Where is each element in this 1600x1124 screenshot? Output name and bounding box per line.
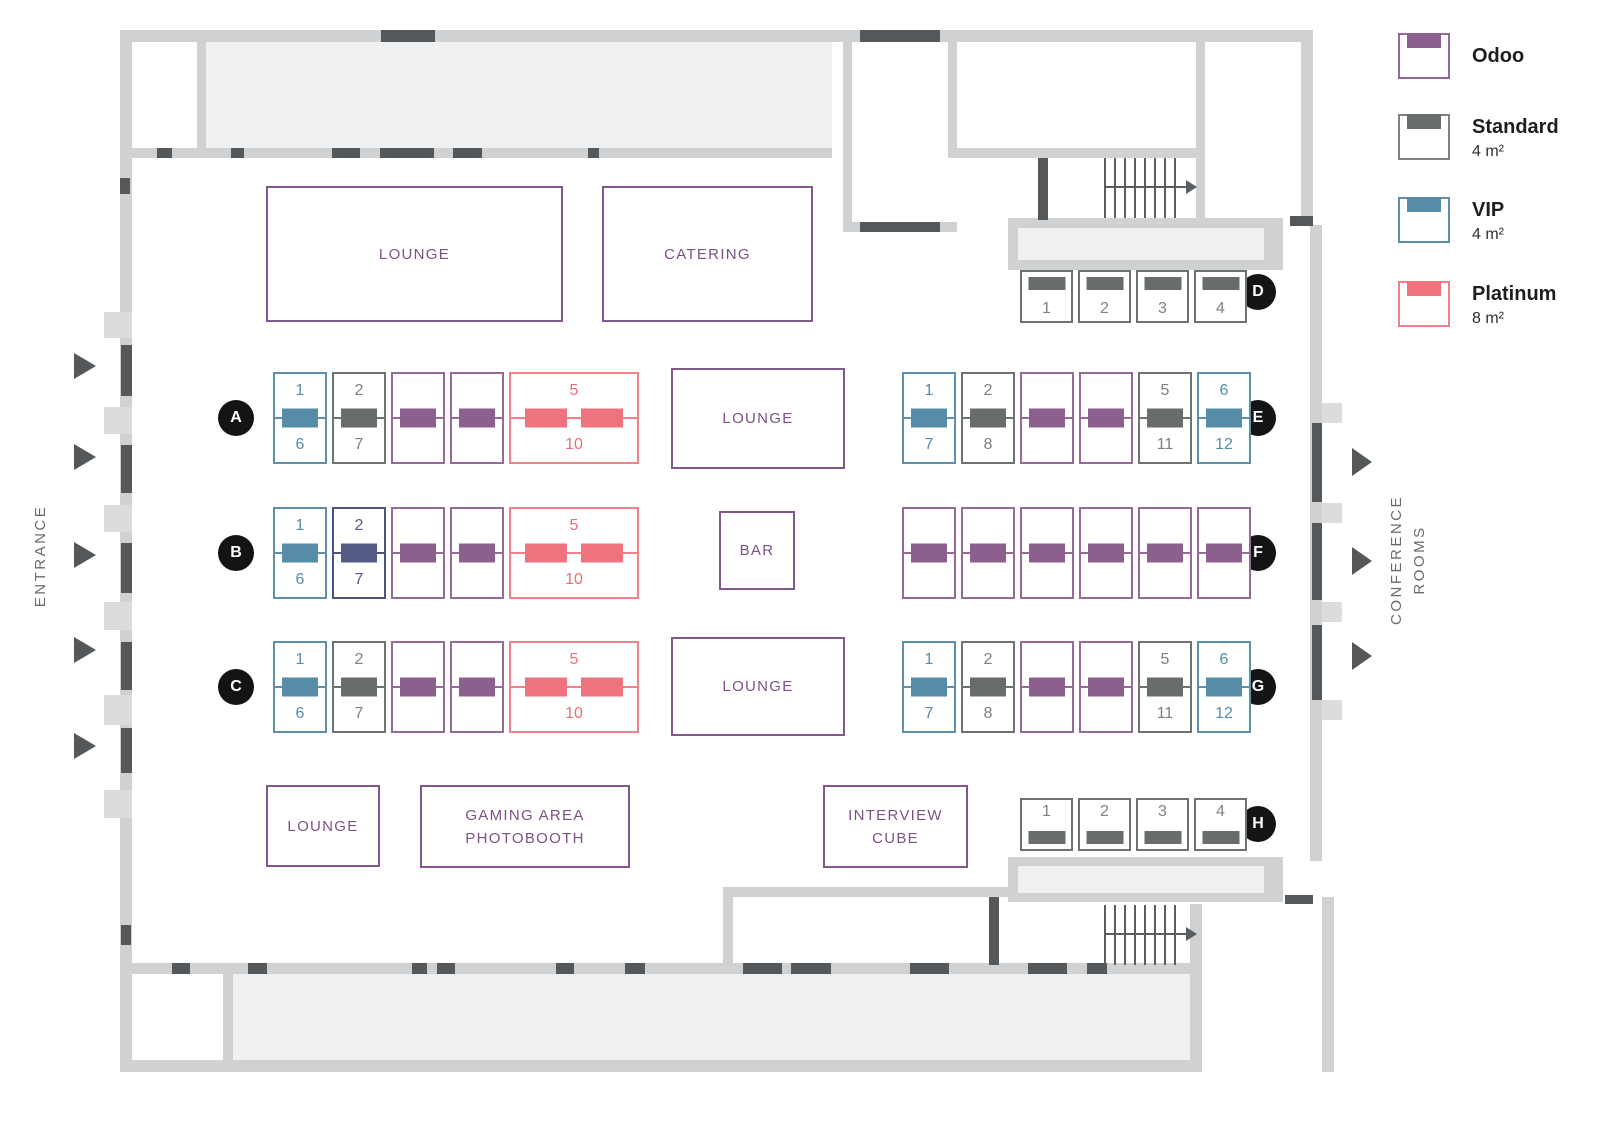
legend-item-platinum: Platinum 8 m² (1398, 281, 1556, 328)
row-letter: F (1253, 544, 1263, 562)
lounge-bottom-area: LOUNGE (266, 785, 380, 867)
conference-arrow-icon (1352, 547, 1372, 575)
wall (197, 42, 206, 148)
door-segment (121, 728, 132, 773)
door-segment (381, 30, 435, 42)
legend-label: VIP (1472, 199, 1504, 221)
booth-g-standard[interactable]: 2 8 (961, 641, 1015, 733)
stairs-bottom-arrow-line (1104, 933, 1188, 935)
legend-item-standard: Standard 4 m² (1398, 114, 1559, 161)
booth-table (1202, 831, 1239, 844)
row-badge-c: C (218, 669, 254, 705)
door-segment (412, 963, 427, 974)
door-segment (121, 445, 132, 493)
door-segment (121, 543, 132, 593)
booth-table (1028, 277, 1065, 290)
pillar (104, 790, 132, 818)
booth-f-odoo[interactable] (1020, 507, 1074, 599)
catering-label: CATERING (664, 243, 751, 266)
booth-h4[interactable]: 4 (1194, 798, 1247, 851)
door-segment (172, 963, 190, 974)
booth-c-odoo[interactable] (450, 641, 504, 733)
lounge-center-upper-area: LOUNGE (671, 368, 845, 469)
booth-table (1086, 831, 1123, 844)
booth-table (459, 544, 495, 563)
booth-table (970, 409, 1006, 428)
booth-number: 5 (1140, 382, 1190, 400)
lounge-center-upper-label: LOUNGE (722, 407, 793, 430)
entrance-arrow-icon (74, 733, 96, 759)
row-letter: A (230, 409, 242, 427)
booth-table (1144, 277, 1181, 290)
booth-number: 5 (511, 517, 637, 535)
booth-e-odoo[interactable] (1020, 372, 1074, 464)
booth-number: 7 (334, 571, 384, 589)
door-segment (453, 148, 482, 158)
booth-table (1202, 277, 1239, 290)
booth-table (282, 678, 318, 697)
booth-d4[interactable]: 4 (1194, 270, 1247, 323)
door-segment (1285, 895, 1313, 904)
booth-table (1147, 678, 1183, 697)
booth-a-odoo[interactable] (450, 372, 504, 464)
wall (843, 42, 852, 232)
booth-f-odoo[interactable] (1079, 507, 1133, 599)
booth-b-odoo[interactable] (450, 507, 504, 599)
booth-table (1028, 831, 1065, 844)
booth-g-standard[interactable]: 5 11 (1138, 641, 1192, 733)
booth-number: 11 (1140, 436, 1190, 454)
legend-item-vip: VIP 4 m² (1398, 197, 1504, 244)
catering-area: CATERING (602, 186, 813, 322)
booth-e-vip[interactable]: 6 12 (1197, 372, 1251, 464)
booth-number: 5 (511, 651, 637, 669)
booth-table (459, 409, 495, 428)
booth-table (581, 409, 623, 428)
booth-b-platinum[interactable]: 5 10 (509, 507, 639, 599)
wall (948, 42, 957, 158)
door-segment (625, 963, 645, 974)
wall (1196, 42, 1205, 222)
booth-f-odoo[interactable] (1197, 507, 1251, 599)
booth-table (911, 409, 947, 428)
wall (723, 887, 1010, 897)
booth-a-vip[interactable]: 1 6 (273, 372, 327, 464)
booth-table (1088, 678, 1124, 697)
gaming-label-line2: PHOTOBOOTH (465, 827, 584, 850)
door-segment (1312, 423, 1322, 502)
bar-area: BAR (719, 511, 795, 590)
swatch-bar (1407, 114, 1441, 129)
entrance-arrow-icon (74, 542, 96, 568)
booth-number: 1 (275, 651, 325, 669)
booth-table (911, 544, 947, 563)
wall (1322, 897, 1334, 1072)
booth-table (970, 678, 1006, 697)
booth-number: 2 (334, 517, 384, 535)
pillar (1322, 602, 1342, 622)
bar-label: BAR (740, 539, 775, 562)
door-segment (910, 963, 949, 974)
door-segment (556, 963, 574, 974)
booth-a-platinum[interactable]: 5 10 (509, 372, 639, 464)
booth-number: 2 (963, 382, 1013, 400)
booth-number: 1 (1022, 300, 1071, 318)
booth-row-e: 1 7 2 8 5 11 6 12 (902, 372, 1251, 464)
row-letter: G (1252, 678, 1264, 696)
legend-item-odoo: Odoo (1398, 33, 1524, 79)
conference-rooms-label: CONFERENCE ROOMS (1385, 430, 1431, 690)
booth-table (400, 544, 436, 563)
booth-table (1206, 544, 1242, 563)
door-segment (248, 963, 267, 974)
booth-h1[interactable]: 1 (1020, 798, 1073, 851)
booth-number: 5 (511, 382, 637, 400)
booth-table (1086, 277, 1123, 290)
booth-table (341, 678, 377, 697)
row-letter: C (230, 678, 242, 696)
booth-number: 7 (334, 436, 384, 454)
bottom-room-fill (233, 974, 1190, 1060)
pillar (104, 505, 132, 532)
booth-g-odoo[interactable] (1079, 641, 1133, 733)
pillar (104, 312, 132, 338)
platinum-swatch-icon (1398, 281, 1450, 327)
booth-table (341, 544, 377, 563)
gaming-area: GAMING AREA PHOTOBOOTH (420, 785, 630, 868)
booth-number: 12 (1199, 705, 1249, 723)
booth-c-platinum[interactable]: 5 10 (509, 641, 639, 733)
row-letter: H (1252, 815, 1264, 833)
booth-g-vip[interactable]: 6 12 (1197, 641, 1251, 733)
booth-table (970, 544, 1006, 563)
wall (120, 1060, 1202, 1072)
legend-size: 8 m² (1472, 310, 1556, 328)
row-badge-b: B (218, 535, 254, 571)
booth-g-vip[interactable]: 1 7 (902, 641, 956, 733)
door-segment (332, 148, 360, 158)
legend-size: 4 m² (1472, 143, 1559, 161)
booth-table (459, 678, 495, 697)
pillar (104, 695, 132, 725)
door-segment (1312, 523, 1322, 600)
entrance-arrow-icon (74, 353, 96, 379)
booth-f-odoo[interactable] (1138, 507, 1192, 599)
row-badge-a: A (218, 400, 254, 436)
booth-number: 1 (904, 382, 954, 400)
booth-e-vip[interactable]: 1 7 (902, 372, 956, 464)
door-segment (588, 148, 599, 158)
door-segment (120, 178, 130, 194)
booth-table (400, 409, 436, 428)
booth-number: 10 (511, 436, 637, 454)
booth-table (525, 544, 567, 563)
booth-number: 5 (1140, 651, 1190, 669)
stairs-top-arrow-line (1104, 186, 1188, 188)
booth-table (1029, 678, 1065, 697)
booth-number: 6 (1199, 382, 1249, 400)
booth-table (911, 678, 947, 697)
booth-number: 6 (275, 571, 325, 589)
booth-number: 7 (904, 705, 954, 723)
corridor-bottom-fill (1018, 866, 1264, 893)
booth-number: 2 (334, 382, 384, 400)
booth-d2[interactable]: 2 (1078, 270, 1131, 323)
door-segment (380, 148, 434, 158)
booth-row-a: 1 6 2 7 5 10 (273, 372, 639, 464)
door-segment (437, 963, 455, 974)
booth-table (1088, 544, 1124, 563)
wall (223, 974, 233, 1062)
booth-number: 7 (334, 705, 384, 723)
door-segment (121, 642, 132, 690)
booth-row-g: 1 7 2 8 5 11 6 12 (902, 641, 1251, 733)
door-segment (121, 345, 132, 396)
booth-table (341, 409, 377, 428)
booth-row-d: 1 2 3 4 (1020, 270, 1247, 323)
swatch-bar (1407, 197, 1441, 212)
pillar (1322, 700, 1342, 720)
booth-number: 8 (963, 436, 1013, 454)
booth-number: 1 (1022, 803, 1071, 821)
booth-row-b: 1 6 2 7 5 10 (273, 507, 639, 599)
pillar (1322, 403, 1342, 423)
booth-table (1029, 544, 1065, 563)
row-letter: E (1253, 409, 1264, 427)
booth-number: 4 (1196, 803, 1245, 821)
door-segment (860, 222, 940, 232)
booth-a-standard[interactable]: 2 7 (332, 372, 386, 464)
door-segment (231, 148, 244, 158)
conference-rooms-label-line2: ROOMS (1408, 525, 1431, 594)
entrance-arrow-icon (74, 444, 96, 470)
booth-number: 11 (1140, 705, 1190, 723)
wall (120, 30, 1313, 42)
booth-number: 2 (334, 651, 384, 669)
booth-table (1206, 409, 1242, 428)
booth-number: 3 (1138, 803, 1187, 821)
booth-table (1029, 409, 1065, 428)
row-letter: B (230, 544, 242, 562)
odoo-swatch-icon (1398, 33, 1450, 79)
legend-label: Odoo (1472, 45, 1524, 67)
booth-row-c: 1 6 2 7 5 10 (273, 641, 639, 733)
booth-number: 12 (1199, 436, 1249, 454)
entrance-label-text: ENTRANCE (29, 505, 52, 608)
vip-swatch-icon (1398, 197, 1450, 243)
interview-cube-area: INTERVIEW CUBE (823, 785, 968, 868)
booth-number: 6 (275, 436, 325, 454)
conference-arrow-icon (1352, 448, 1372, 476)
booth-table (1206, 678, 1242, 697)
legend-label: Standard (1472, 116, 1559, 138)
pillar (104, 407, 132, 434)
booth-number: 3 (1138, 300, 1187, 318)
booth-table (282, 544, 318, 563)
wall (948, 148, 1205, 158)
row-letter: D (1252, 283, 1264, 301)
standard-swatch-icon (1398, 114, 1450, 160)
stairs-bottom-arrow-icon (1186, 927, 1197, 941)
door-segment (989, 897, 999, 965)
lounge-top-area: LOUNGE (266, 186, 563, 322)
wall (1301, 30, 1313, 225)
lounge-bottom-label: LOUNGE (287, 815, 358, 838)
door-segment (1028, 963, 1067, 974)
pillar (104, 602, 132, 630)
booth-b-vip[interactable]: 1 6 (273, 507, 327, 599)
door-segment (743, 963, 782, 974)
entrance-arrow-icon (74, 637, 96, 663)
booth-d3[interactable]: 3 (1136, 270, 1189, 323)
booth-table (1144, 831, 1181, 844)
booth-h2[interactable]: 2 (1078, 798, 1131, 851)
booth-number: 6 (1199, 651, 1249, 669)
booth-number: 4 (1196, 300, 1245, 318)
booth-e-standard[interactable]: 2 8 (961, 372, 1015, 464)
booth-row-f (902, 507, 1251, 599)
booth-number: 1 (275, 382, 325, 400)
booth-f-odoo[interactable] (961, 507, 1015, 599)
booth-number: 1 (904, 651, 954, 669)
booth-e-standard[interactable]: 5 11 (1138, 372, 1192, 464)
booth-tables (511, 678, 637, 697)
booth-c-odoo[interactable] (391, 641, 445, 733)
booth-table (525, 409, 567, 428)
wall (723, 887, 733, 965)
booth-number: 2 (1080, 300, 1129, 318)
booth-a-odoo[interactable] (391, 372, 445, 464)
legend-label: Platinum (1472, 283, 1556, 305)
booth-c-standard[interactable]: 2 7 (332, 641, 386, 733)
entrance-label: ENTRANCE (30, 456, 50, 656)
door-segment (121, 925, 131, 945)
interview-label-line2: CUBE (872, 827, 919, 850)
booth-c-vip[interactable]: 1 6 (273, 641, 327, 733)
booth-table (1147, 544, 1183, 563)
booth-row-h: 1 2 3 4 (1020, 798, 1247, 851)
interview-label-line1: INTERVIEW (848, 804, 943, 827)
booth-f-odoo[interactable] (902, 507, 956, 599)
booth-number: 10 (511, 571, 637, 589)
booth-table (282, 409, 318, 428)
booth-number: 2 (1080, 803, 1129, 821)
swatch-bar (1407, 281, 1441, 296)
legend-size: 4 m² (1472, 226, 1504, 244)
booth-d1[interactable]: 1 (1020, 270, 1073, 323)
booth-b-highlighted[interactable]: 2 7 (332, 507, 386, 599)
top-room-fill (206, 42, 832, 148)
conference-arrow-icon (1352, 642, 1372, 670)
door-segment (1312, 625, 1322, 700)
gaming-label-line1: GAMING AREA (465, 804, 584, 827)
lounge-top-label: LOUNGE (379, 243, 450, 266)
booth-table (400, 678, 436, 697)
door-segment (860, 30, 940, 42)
booth-number: 7 (904, 436, 954, 454)
booth-tables (511, 409, 637, 428)
pillar (1322, 503, 1342, 523)
stairs-bottom (1104, 905, 1176, 965)
door-segment (157, 148, 172, 158)
swatch-bar (1407, 33, 1441, 48)
door-segment (1038, 158, 1048, 220)
booth-table (525, 678, 567, 697)
door-segment (791, 963, 831, 974)
booth-table (1088, 409, 1124, 428)
booth-number: 2 (963, 651, 1013, 669)
booth-h3[interactable]: 3 (1136, 798, 1189, 851)
stairs-top-arrow-icon (1186, 180, 1197, 194)
booth-table (581, 678, 623, 697)
lounge-center-lower-label: LOUNGE (722, 675, 793, 698)
booth-number: 10 (511, 705, 637, 723)
booth-e-odoo[interactable] (1079, 372, 1133, 464)
corridor-top-fill (1018, 228, 1264, 260)
booth-number: 8 (963, 705, 1013, 723)
lounge-center-lower-area: LOUNGE (671, 637, 845, 736)
conference-rooms-label-line1: CONFERENCE (1385, 495, 1408, 625)
booth-table (581, 544, 623, 563)
floor-plan-canvas: ENTRANCE CONFERENCE ROOMS LOUNGE CATERIN… (0, 0, 1600, 1124)
door-segment (1290, 216, 1313, 226)
booth-tables (511, 544, 637, 563)
booth-g-odoo[interactable] (1020, 641, 1074, 733)
booth-table (1147, 409, 1183, 428)
stairs-top (1104, 158, 1176, 218)
booth-number: 6 (275, 705, 325, 723)
booth-number: 1 (275, 517, 325, 535)
booth-b-odoo[interactable] (391, 507, 445, 599)
